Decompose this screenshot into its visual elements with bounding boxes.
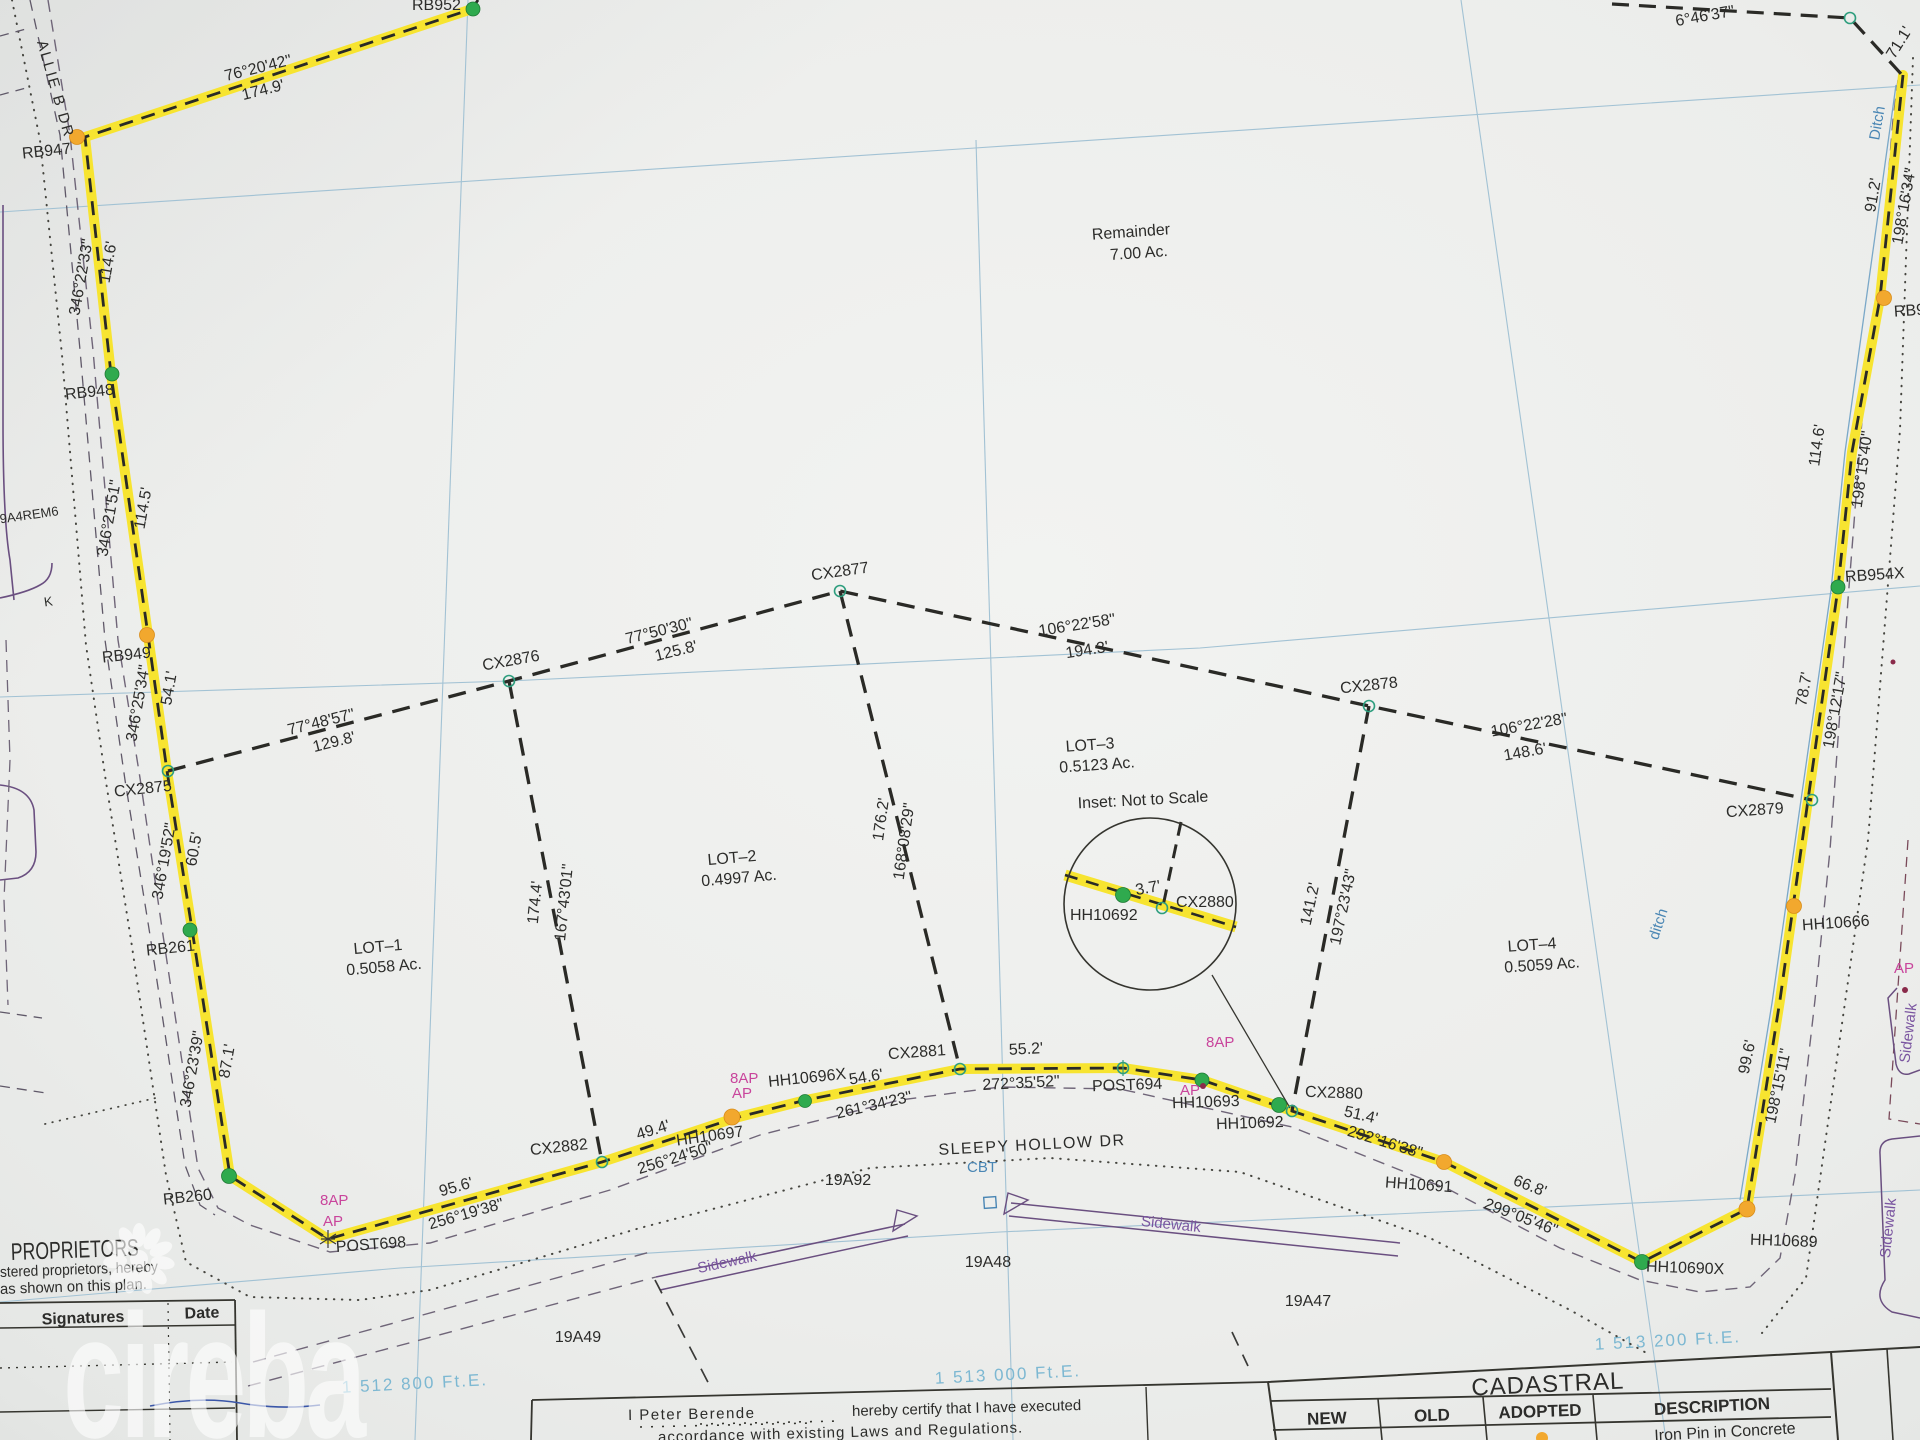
svg-text:LOT–3: LOT–3 [1065, 735, 1115, 755]
svg-text:LOT–4: LOT–4 [1507, 935, 1557, 955]
svg-text:RB95: RB95 [1893, 301, 1920, 321]
svg-text:19A49: 19A49 [555, 1329, 601, 1346]
svg-text:HH10689: HH10689 [1750, 1232, 1818, 1251]
svg-text:55.2': 55.2' [1009, 1040, 1044, 1059]
svg-text:OLD: OLD [1414, 1405, 1451, 1425]
svg-text:AP: AP [1180, 1082, 1200, 1099]
svg-text:RB952: RB952 [412, 0, 461, 14]
svg-text:CX2880: CX2880 [1176, 894, 1234, 911]
svg-text:CBT: CBT [967, 1159, 997, 1176]
svg-text:19A47: 19A47 [1285, 1293, 1331, 1310]
svg-text:HH10690X: HH10690X [1646, 1259, 1725, 1279]
svg-text:CX2880: CX2880 [1305, 1084, 1363, 1103]
svg-text:ADOPTED: ADOPTED [1498, 1401, 1582, 1423]
svg-text:8AP: 8AP [320, 1192, 348, 1209]
svg-text:AP: AP [732, 1085, 752, 1102]
svg-text:I Peter Berende: I Peter Berende [628, 1405, 756, 1424]
svg-text:HH10692: HH10692 [1070, 907, 1138, 924]
svg-text:AP: AP [1894, 960, 1914, 977]
svg-text:AP: AP [323, 1213, 343, 1230]
svg-text:POST694: POST694 [1092, 1076, 1163, 1095]
svg-text:NEW: NEW [1307, 1408, 1348, 1428]
svg-text:HH10692: HH10692 [1216, 1114, 1284, 1133]
svg-text:19A92: 19A92 [825, 1172, 871, 1189]
svg-text:19A48: 19A48 [965, 1254, 1011, 1271]
svg-text:cireba: cireba [63, 1278, 367, 1440]
svg-text:8AP: 8AP [1206, 1034, 1234, 1051]
